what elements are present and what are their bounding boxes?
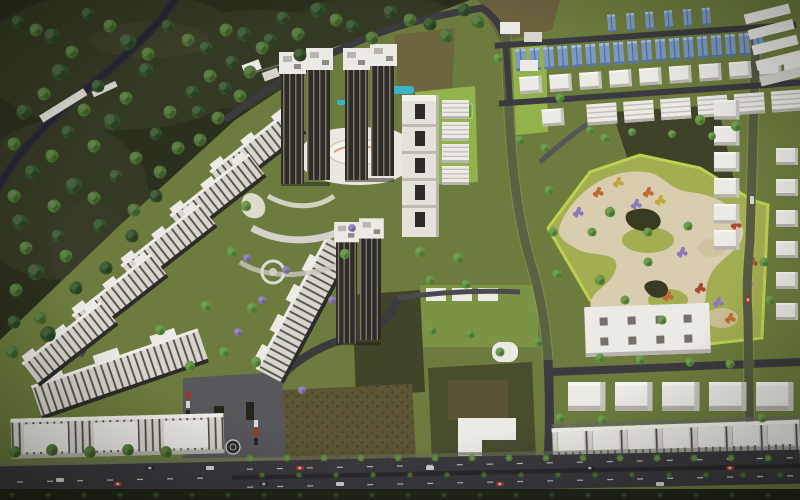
dusk-vignette <box>0 0 800 500</box>
township-master-plan-svg: Aerial dusk 3D render of a township mast… <box>0 0 800 500</box>
aerial-render: Aerial dusk 3D render of a township mast… <box>0 0 800 500</box>
